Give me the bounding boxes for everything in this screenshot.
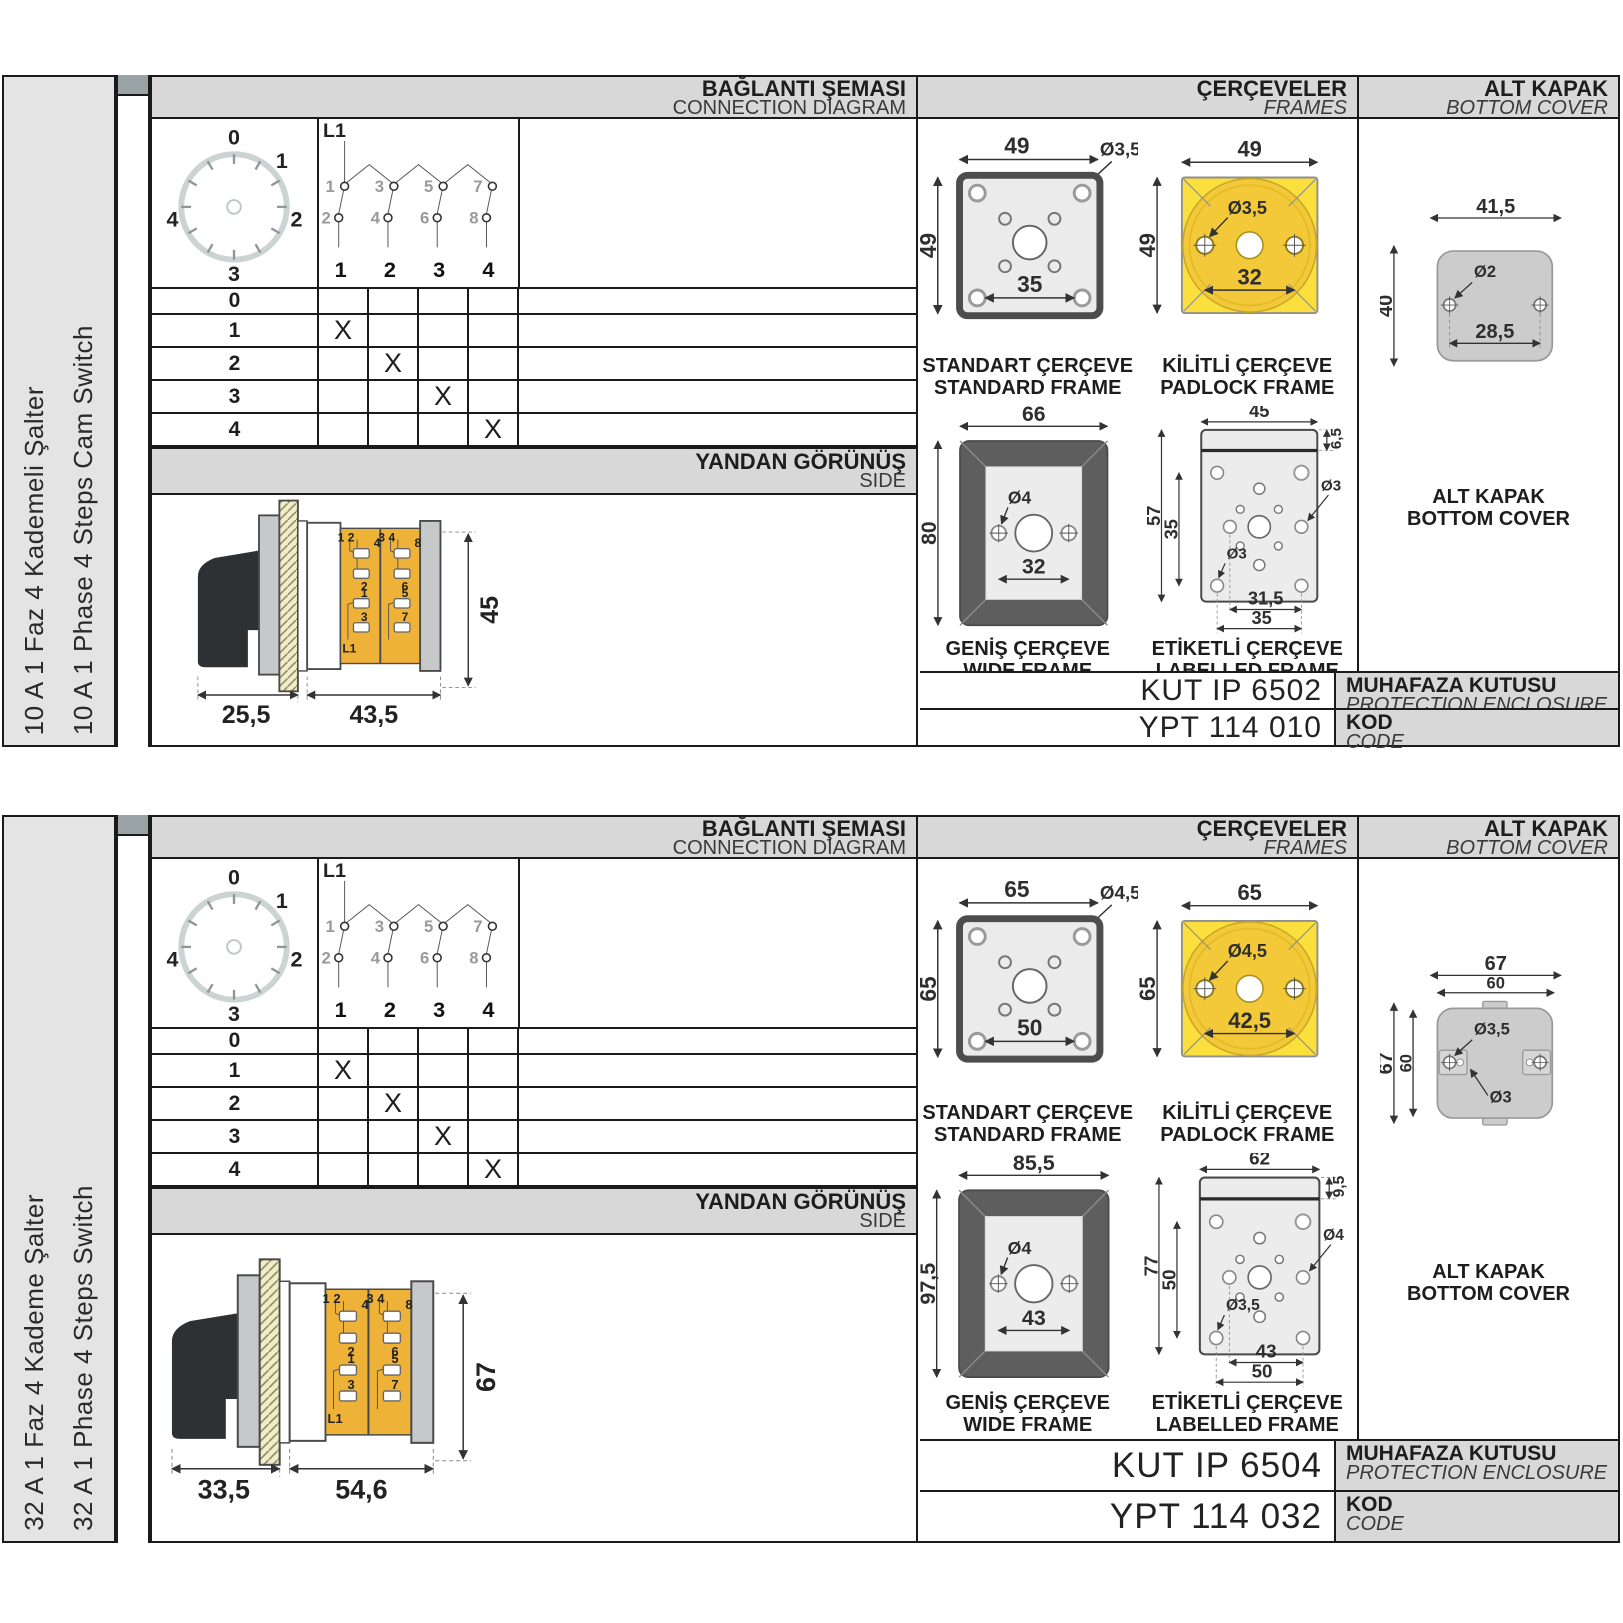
code-label-tr: KOD: [1346, 1494, 1618, 1515]
product-name-turkish: 10 A 1 Faz 4 Kademeli Şalter: [19, 386, 50, 735]
contact-6: 6: [420, 949, 429, 968]
bottom-cover-figure: 41,5 40: [1359, 119, 1618, 533]
wide-frame-pitch: 32: [1022, 556, 1046, 579]
enclosure-code-value: KUT IP 6504: [920, 1441, 1334, 1490]
side-view-figure: 1 2 4 2 1 3 3 4 8 6 5 7 L1: [152, 1235, 916, 1541]
padlock-frame-caption-tr: KİLİTLİ ÇERÇEVE: [1160, 355, 1334, 377]
standard-frame-svg: 49 Ø3,5 49: [918, 123, 1138, 355]
labelled-frame-hole-b-dia: Ø3,5: [1226, 1297, 1260, 1314]
standard-frame-caption-en: STANDARD FRAME: [922, 1124, 1133, 1146]
padlock-frame-caption-tr: KİLİTLİ ÇERÇEVE: [1160, 1102, 1334, 1124]
labelled-frame-hole-a-dia: Ø3: [1321, 477, 1341, 494]
x-mark: X: [319, 1055, 369, 1086]
dim-body-depth: 54,6: [335, 1475, 387, 1505]
bottom-cover-caption-en: BOTTOM COVER: [1407, 1283, 1570, 1305]
contact-4: 4: [371, 949, 381, 968]
contact-5: 5: [424, 917, 433, 936]
frames-grid: 49 Ø3,5 49: [918, 119, 1357, 761]
connection-section: BAĞLANTI ŞEMASI CONNECTION DIAGRAM: [152, 77, 918, 745]
terminal-l1: L1: [342, 641, 356, 655]
terminal-7: 7: [391, 1377, 398, 1392]
wide-frame-hole-dia: Ø4: [1008, 488, 1032, 508]
labelled-frame-hole-a-dia: Ø4: [1323, 1227, 1344, 1244]
pole-col-1: 1: [335, 257, 347, 282]
x-mark: X: [319, 315, 369, 346]
product-name-turkish: 32 A 1 Faz 4 Kademe Şalter: [19, 1194, 50, 1531]
contact-2: 2: [322, 949, 331, 968]
frames-row-top: 49 Ø3,5 49: [918, 119, 1357, 402]
wide-frame-caption: GENİŞ ÇERÇEVE WIDE FRAME: [946, 1392, 1110, 1439]
spine-strip: [116, 815, 150, 1543]
side-view-title-tr: YANDAN GÖRÜNÜŞ: [152, 451, 906, 472]
bottom-cover-title-tr: ALT KAPAK: [1359, 78, 1608, 99]
table-row: 1 X: [152, 1055, 916, 1088]
terminal-1: 1: [361, 586, 368, 600]
labelled-frame-svg: 62 9,5 77 50: [1138, 1153, 1358, 1392]
standard-frame-svg: 65 Ø4,5 65: [918, 863, 1138, 1102]
dial-pos-0: 0: [228, 125, 240, 149]
dial-pos-1: 1: [276, 149, 288, 173]
connection-title-tr: BAĞLANTI ŞEMASI: [152, 818, 906, 839]
product-name-english: 10 A 1 Phase 4 Steps Cam Switch: [68, 325, 99, 735]
standard-frame-figure: 49 Ø3,5 49: [918, 119, 1138, 402]
code-label-en: CODE: [1346, 733, 1618, 752]
bottom-cover-title-en: BOTTOM COVER: [1359, 839, 1608, 858]
terminal-pair-left: 1 2: [338, 530, 355, 544]
pole-col-3: 3: [433, 257, 445, 282]
labelled-frame-figure: 45 6,5 57 35: [1138, 402, 1358, 685]
contact-7: 7: [473, 177, 482, 196]
pole-col-2: 2: [384, 257, 396, 282]
labelled-frame-svg: 45 6,5 57 35: [1138, 406, 1358, 638]
rotary-dial-svg: 0 1 2 3 4: [152, 119, 317, 287]
bottom-cover-header: ALT KAPAK BOTTOM COVER: [1359, 77, 1618, 119]
frames-row-bottom: 66 80: [918, 402, 1357, 685]
labelled-frame-pitch-a: 31,5: [1247, 588, 1283, 609]
bottom-cover-caption-tr: ALT KAPAK: [1407, 1261, 1570, 1283]
switching-table: 0 1 X 2 X: [152, 289, 916, 434]
table-row: 2 X: [152, 1088, 916, 1121]
frames-row-top: 65 Ø4,5 65: [918, 859, 1357, 1149]
enclosure-label: MUHAFAZA KUTUSU PROTECTION ENCLOSURE: [1334, 673, 1618, 708]
table-row: 2 X: [152, 348, 916, 381]
diagram-row: 0 1 2 3 4 L1: [152, 119, 916, 289]
frames-section: ÇERÇEVELER FRAMES 65 Ø4,5 65: [918, 817, 1359, 1541]
labelled-frame-strip-height: 6,5: [1328, 428, 1345, 449]
frames-title-tr: ÇERÇEVELER: [918, 818, 1347, 839]
standard-frame-caption: STANDART ÇERÇEVE STANDARD FRAME: [922, 1102, 1133, 1149]
bottom-cover-figure: 67 60 67 60: [1359, 859, 1618, 1308]
connection-title-en: CONNECTION DIAGRAM: [152, 99, 906, 118]
frames-header: ÇERÇEVELER FRAMES: [918, 817, 1357, 859]
x-mark: X: [369, 348, 419, 379]
terminal-8: 8: [405, 1297, 412, 1312]
spine-square: [118, 815, 148, 836]
contact-1: 1: [325, 917, 334, 936]
cover-dim-left1: 67: [1380, 1052, 1397, 1074]
cover-hole1-dia: Ø2: [1474, 262, 1496, 281]
code-label: KOD CODE: [1334, 1492, 1618, 1541]
padlock-frame-figure: 65 65: [1138, 859, 1358, 1149]
contact-1: 1: [325, 177, 334, 196]
diagram-filler: [520, 119, 916, 287]
wide-frame-caption-tr: GENİŞ ÇERÇEVE: [946, 638, 1110, 660]
rotary-dial-svg: 0 1 2 3 4: [152, 859, 317, 1027]
product-code-value: YPT 114 010: [920, 710, 1334, 745]
switch-schematic-figure: L1: [319, 859, 520, 1027]
standard-frame-width: 65: [1004, 876, 1030, 902]
cover-dim-top1: 67: [1484, 953, 1506, 975]
code-row: YPT 114 010 KOD CODE: [920, 708, 1618, 745]
dial-pos-3: 3: [228, 262, 240, 286]
standard-frame-height: 49: [918, 233, 941, 258]
row-label: 3: [152, 381, 319, 412]
table-gap: [152, 1174, 916, 1187]
bottom-cover-caption: ALT KAPAK BOTTOM COVER: [1407, 486, 1570, 533]
padlock-frame-pitch: 42,5: [1228, 1008, 1271, 1033]
side-view-svg: 1 2 4 2 1 3 3 4 8 6 5 7 L1: [152, 1235, 916, 1541]
catalog-page: 10 A 1 Faz 4 Kademeli Şalter 10 A 1 Phas…: [0, 0, 1623, 1623]
contact-8: 8: [469, 209, 478, 228]
frames-title-tr: ÇERÇEVELER: [918, 78, 1347, 99]
labelled-frame-caption: ETİKETLİ ÇERÇEVE LABELLED FRAME: [1152, 1392, 1343, 1439]
cover-dim-left2: 60: [1396, 1054, 1415, 1072]
connection-header: BAĞLANTI ŞEMASI CONNECTION DIAGRAM: [152, 77, 916, 119]
switch-schematic-svg: L1: [319, 859, 518, 1027]
side-label-column: 32 A 1 Faz 4 Kademe Şalter 32 A 1 Phase …: [2, 815, 116, 1543]
labelled-frame-pitch-a: 43: [1255, 1341, 1276, 1362]
standard-frame-height: 65: [918, 976, 941, 1002]
enclosure-row: KUT IP 6504 MUHAFAZA KUTUSU PROTECTION E…: [920, 1439, 1618, 1490]
code-label-en: CODE: [1346, 1515, 1618, 1534]
wide-frame-width: 85,5: [1013, 1153, 1055, 1175]
side-view-title-tr: YANDAN GÖRÜNÜŞ: [152, 1191, 906, 1212]
product-panel: 32 A 1 Faz 4 Kademe Şalter 32 A 1 Phase …: [2, 815, 1620, 1543]
enclosure-label-tr: MUHAFAZA KUTUSU: [1346, 1443, 1618, 1464]
terminal-3: 3: [347, 1377, 354, 1392]
padlock-frame-caption-en: PADLOCK FRAME: [1160, 377, 1334, 399]
dial-pos-0: 0: [228, 865, 240, 889]
connection-title-en: CONNECTION DIAGRAM: [152, 839, 906, 858]
code-label: KOD CODE: [1334, 710, 1618, 745]
cover-dim-top1: 41,5: [1476, 196, 1515, 218]
labelled-frame-caption-tr: ETİKETLİ ÇERÇEVE: [1152, 638, 1343, 660]
side-view-title-en: SIDE: [152, 1212, 906, 1231]
rotary-dial-figure: 0 1 2 3 4: [152, 119, 319, 287]
standard-frame-width: 49: [1004, 133, 1029, 159]
dial-pos-2: 2: [291, 947, 303, 971]
frames-row-bottom: 85,5 97,5: [918, 1149, 1357, 1439]
pole-col-2: 2: [384, 997, 396, 1022]
row-label: 1: [152, 315, 319, 346]
row-label: 2: [152, 1088, 319, 1119]
enclosure-code-value: KUT IP 6502: [920, 673, 1334, 708]
terminal-l1: L1: [328, 1411, 343, 1426]
pole-col-3: 3: [433, 997, 445, 1022]
row-label: 3: [152, 1121, 319, 1152]
wide-frame-figure: 66 80: [918, 402, 1138, 685]
table-row: 0: [152, 1029, 916, 1055]
bottom-cover-title-en: BOTTOM COVER: [1359, 99, 1608, 118]
wide-frame-figure: 85,5 97,5: [918, 1149, 1138, 1439]
panel-main: BAĞLANTI ŞEMASI CONNECTION DIAGRAM: [150, 75, 1620, 747]
padlock-frame-hole-dia: Ø3,5: [1227, 198, 1266, 218]
wide-frame-height: 97,5: [918, 1263, 940, 1305]
bottom-cover-caption: ALT KAPAK BOTTOM COVER: [1407, 1261, 1570, 1308]
dial-pos-4: 4: [167, 947, 179, 971]
terminal-5: 5: [391, 1351, 398, 1366]
wide-frame-caption-tr: GENİŞ ÇERÇEVE: [946, 1392, 1110, 1414]
terminal-1: 1: [347, 1351, 354, 1366]
terminal-8: 8: [415, 536, 422, 550]
table-row: 3 X: [152, 1121, 916, 1154]
connection-title-tr: BAĞLANTI ŞEMASI: [152, 78, 906, 99]
contact-5: 5: [424, 177, 433, 196]
cover-dim-left1: 40: [1380, 295, 1397, 317]
switch-schematic-svg: L1: [319, 119, 518, 287]
padlock-frame-caption-en: PADLOCK FRAME: [1160, 1124, 1334, 1146]
enclosure-row: KUT IP 6502 MUHAFAZA KUTUSU PROTECTION E…: [920, 671, 1618, 708]
product-name-english: 32 A 1 Phase 4 Steps Switch: [68, 1185, 99, 1531]
padlock-frame-svg: 65 65: [1138, 863, 1358, 1102]
bottom-cover-header: ALT KAPAK BOTTOM COVER: [1359, 817, 1618, 859]
dim-body-height: 67: [471, 1362, 501, 1392]
table-gap: [152, 434, 916, 447]
wide-frame-caption-en: WIDE FRAME: [946, 1414, 1110, 1436]
cover-dim-top2: 60: [1486, 973, 1504, 992]
contact-3: 3: [375, 917, 384, 936]
wide-frame-width: 66: [1022, 406, 1046, 426]
standard-frame-caption-tr: STANDART ÇERÇEVE: [922, 355, 1133, 377]
dial-pos-1: 1: [276, 889, 288, 913]
contact-6: 6: [420, 209, 429, 228]
switch-schematic-figure: L1: [319, 119, 520, 287]
bottom-cover-caption-en: BOTTOM COVER: [1407, 508, 1570, 530]
standard-frame-caption-tr: STANDART ÇERÇEVE: [922, 1102, 1133, 1124]
terminal-5: 5: [402, 586, 409, 600]
padlock-frame-hole-dia: Ø4,5: [1227, 941, 1266, 961]
dial-pos-2: 2: [291, 207, 303, 231]
pole-col-4: 4: [482, 257, 494, 282]
schematic-l1-label: L1: [323, 860, 346, 882]
bottom-cover-svg: 41,5 40: [1380, 123, 1598, 486]
cover-hole2-dia: Ø3: [1489, 1087, 1511, 1106]
product-panel: 10 A 1 Faz 4 Kademeli Şalter 10 A 1 Phas…: [2, 75, 1620, 747]
dial-pos-4: 4: [167, 207, 179, 231]
labelled-frame-inner-height: 50: [1158, 1269, 1179, 1290]
labelled-frame-width: 62: [1249, 1153, 1270, 1168]
row-label: 0: [152, 1029, 319, 1053]
padlock-frame-height: 49: [1138, 233, 1160, 257]
padlock-frame-pitch: 32: [1237, 264, 1261, 289]
dim-front-depth: 25,5: [222, 701, 271, 729]
frames-section: ÇERÇEVELER FRAMES 49 Ø3,5 49: [918, 77, 1359, 745]
terminal-pair-left: 1 2: [323, 1291, 341, 1306]
labelled-frame-strip-height: 9,5: [1330, 1175, 1347, 1197]
frames-title-en: FRAMES: [918, 839, 1347, 858]
frames-title-en: FRAMES: [918, 99, 1347, 118]
panel-main: BAĞLANTI ŞEMASI CONNECTION DIAGRAM: [150, 815, 1620, 1543]
enclosure-label-en: PROTECTION ENCLOSURE: [1346, 1464, 1618, 1483]
wide-frame-height: 80: [918, 521, 941, 545]
diagram-filler: [520, 859, 916, 1027]
schematic-l1-label: L1: [323, 120, 346, 142]
product-code-value: YPT 114 032: [920, 1492, 1334, 1541]
terminal-pair-right: 3 4: [366, 1291, 385, 1306]
dial-pos-3: 3: [228, 1002, 240, 1026]
contact-7: 7: [473, 917, 482, 936]
bottom-cover-section: ALT KAPAK BOTTOM COVER 41,5 40: [1359, 77, 1618, 745]
dim-front-depth: 33,5: [198, 1475, 250, 1505]
padlock-frame-height: 65: [1138, 977, 1160, 1001]
diagram-row: 0 1 2 3 4 L1: [152, 859, 916, 1029]
code-row: YPT 114 032 KOD CODE: [920, 1490, 1618, 1541]
terminal-7: 7: [402, 610, 409, 624]
side-view-header: YANDAN GÖRÜNÜŞ SIDE: [152, 447, 916, 495]
side-label-column: 10 A 1 Faz 4 Kademeli Şalter 10 A 1 Phas…: [2, 75, 116, 747]
terminal-pair-right: 3 4: [378, 530, 395, 544]
standard-frame-pitch: 50: [1017, 1014, 1042, 1040]
side-view-figure: 1 2 4 2 1 3 3 4 8 6 5 7 L1: [152, 495, 916, 745]
standard-frame-caption: STANDART ÇERÇEVE STANDARD FRAME: [922, 355, 1133, 402]
bottom-cover-svg: 67 60 67 60: [1380, 863, 1598, 1261]
wide-frame-hole-dia: Ø4: [1008, 1238, 1032, 1258]
wide-frame-pitch: 43: [1022, 1306, 1046, 1330]
bottom-cover-section: ALT KAPAK BOTTOM COVER 67 60 67 60: [1359, 817, 1618, 1541]
side-view-title-en: SIDE: [152, 472, 906, 491]
bottom-cover-title-tr: ALT KAPAK: [1359, 818, 1608, 839]
spine-strip: [116, 75, 150, 747]
contact-8: 8: [469, 949, 478, 968]
standard-frame-pitch: 35: [1017, 271, 1043, 297]
padlock-frame-width: 49: [1237, 137, 1261, 162]
x-mark: X: [419, 381, 469, 412]
row-label: 2: [152, 348, 319, 379]
contact-3: 3: [375, 177, 384, 196]
terminal-3: 3: [361, 610, 368, 624]
wide-frame-svg: 66 80: [918, 406, 1138, 638]
labelled-frame-pitch-b: 35: [1251, 607, 1271, 628]
table-row: 0: [152, 289, 916, 315]
code-rows: KUT IP 6502 MUHAFAZA KUTUSU PROTECTION E…: [920, 671, 1618, 745]
wide-frame-svg: 85,5 97,5: [918, 1153, 1138, 1392]
dim-body-height: 45: [476, 596, 504, 624]
code-label-tr: KOD: [1346, 712, 1618, 733]
labelled-frame-pitch-b: 50: [1251, 1360, 1272, 1381]
enclosure-label: MUHAFAZA KUTUSU PROTECTION ENCLOSURE: [1334, 1441, 1618, 1490]
connection-section: BAĞLANTI ŞEMASI CONNECTION DIAGRAM: [152, 817, 918, 1541]
padlock-frame-caption: KİLİTLİ ÇERÇEVE PADLOCK FRAME: [1160, 1102, 1334, 1149]
padlock-frame-svg: 49 49: [1138, 123, 1358, 355]
contact-2: 2: [322, 209, 331, 228]
contact-4: 4: [371, 209, 381, 228]
pole-col-4: 4: [482, 997, 494, 1022]
dim-body-depth: 43,5: [349, 701, 398, 729]
switching-table: 0 1 X 2 X: [152, 1029, 916, 1174]
table-row: 1 X: [152, 315, 916, 348]
enclosure-label-tr: MUHAFAZA KUTUSU: [1346, 675, 1618, 696]
row-label: 0: [152, 289, 319, 313]
labelled-frame-width: 45: [1249, 406, 1269, 421]
bottom-cover-caption-tr: ALT KAPAK: [1407, 486, 1570, 508]
rotary-dial-figure: 0 1 2 3 4: [152, 859, 319, 1027]
standard-frame-caption-en: STANDARD FRAME: [922, 377, 1133, 399]
padlock-frame-figure: 49 49: [1138, 119, 1358, 402]
labelled-frame-figure: 62 9,5 77 50: [1138, 1149, 1358, 1439]
connection-header: BAĞLANTI ŞEMASI CONNECTION DIAGRAM: [152, 817, 916, 859]
standard-frame-hole-dia: Ø3,5: [1100, 139, 1138, 160]
frames-header: ÇERÇEVELER FRAMES: [918, 77, 1357, 119]
padlock-frame-caption: KİLİTLİ ÇERÇEVE PADLOCK FRAME: [1160, 355, 1334, 402]
side-view-svg: 1 2 4 2 1 3 3 4 8 6 5 7 L1: [152, 495, 916, 745]
x-mark: X: [419, 1121, 469, 1152]
table-row: 3 X: [152, 381, 916, 414]
padlock-frame-width: 65: [1237, 880, 1261, 905]
labelled-frame-caption-tr: ETİKETLİ ÇERÇEVE: [1152, 1392, 1343, 1414]
pole-col-1: 1: [335, 997, 347, 1022]
standard-frame-figure: 65 Ø4,5 65: [918, 859, 1138, 1149]
labelled-frame-inner-height: 35: [1160, 519, 1181, 539]
cover-hole1-dia: Ø3,5: [1474, 1020, 1510, 1039]
row-label: 1: [152, 1055, 319, 1086]
cover-dim-inner: 28,5: [1475, 321, 1514, 343]
labelled-frame-caption-en: LABELLED FRAME: [1152, 1414, 1343, 1436]
x-mark: X: [369, 1088, 419, 1119]
side-view-header: YANDAN GÖRÜNÜŞ SIDE: [152, 1187, 916, 1235]
spine-square: [118, 75, 148, 96]
code-rows: KUT IP 6504 MUHAFAZA KUTUSU PROTECTION E…: [920, 1439, 1618, 1541]
standard-frame-hole-dia: Ø4,5: [1100, 882, 1138, 903]
